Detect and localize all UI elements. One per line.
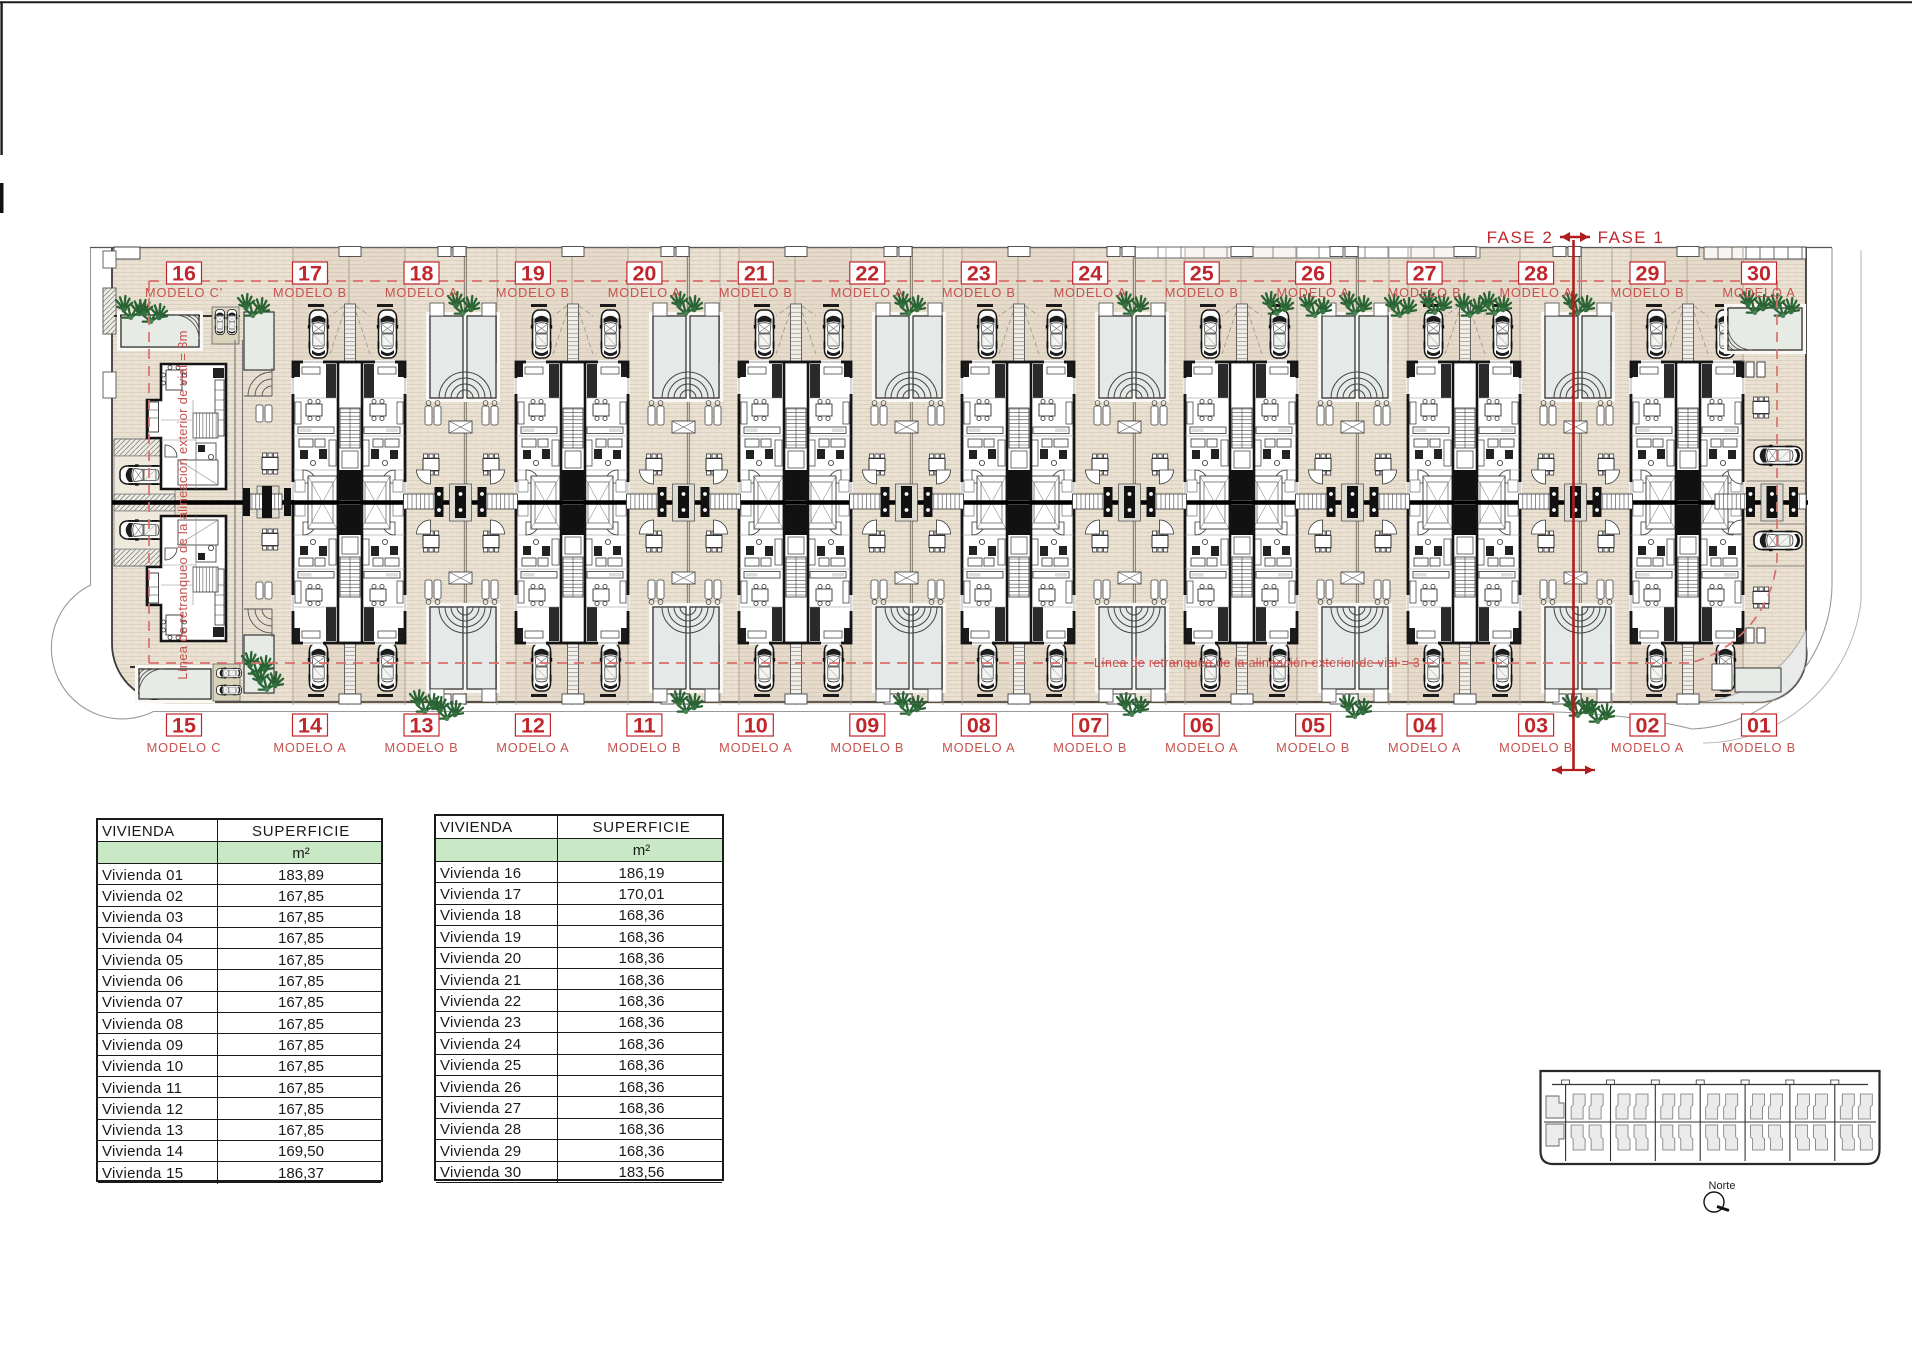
svg-text:MODELO B: MODELO B [1165, 285, 1239, 300]
svg-text:21: 21 [744, 262, 768, 286]
svg-text:04: 04 [1413, 714, 1437, 738]
svg-text:01: 01 [1747, 714, 1771, 738]
svg-text:16: 16 [172, 262, 196, 286]
svg-text:15: 15 [172, 714, 196, 738]
svg-text:20: 20 [632, 262, 656, 286]
svg-text:26: 26 [1301, 262, 1325, 286]
svg-text:23: 23 [967, 262, 991, 286]
svg-text:MODELO B: MODELO B [830, 740, 904, 755]
svg-text:MODELO A: MODELO A [385, 285, 458, 300]
svg-text:MODELO A: MODELO A [273, 740, 346, 755]
svg-text:FASE 1: FASE 1 [1598, 228, 1665, 247]
svg-text:02: 02 [1636, 714, 1660, 738]
svg-text:07: 07 [1078, 714, 1102, 738]
svg-text:10: 10 [744, 714, 768, 738]
svg-text:MODELO B: MODELO B [1722, 740, 1796, 755]
svg-text:MODELO B: MODELO B [273, 285, 347, 300]
svg-text:MODELO B: MODELO B [496, 285, 570, 300]
svg-text:MODELO A: MODELO A [496, 740, 569, 755]
svg-text:14: 14 [298, 714, 322, 738]
svg-text:Línea de retranqueo de la alin: Línea de retranqueo de la alineación ext… [1094, 656, 1420, 670]
svg-text:MODELO B: MODELO B [607, 740, 681, 755]
svg-text:12: 12 [521, 714, 545, 738]
svg-text:MODELO B: MODELO B [385, 740, 459, 755]
svg-text:MODELO B: MODELO B [1611, 285, 1685, 300]
svg-text:19: 19 [521, 262, 545, 286]
svg-text:27: 27 [1413, 262, 1437, 286]
svg-text:FASE 2: FASE 2 [1487, 228, 1554, 247]
svg-text:MODELO A: MODELO A [1276, 285, 1349, 300]
svg-text:MODELO B: MODELO B [719, 285, 793, 300]
svg-text:29: 29 [1636, 262, 1660, 286]
svg-text:MODELO A: MODELO A [1054, 285, 1127, 300]
svg-text:Línea de retranqueo de la alin: Línea de retranqueo de la alineación ext… [175, 330, 190, 679]
svg-text:MODELO A: MODELO A [1499, 285, 1572, 300]
svg-text:24: 24 [1078, 262, 1102, 286]
svg-text:06: 06 [1190, 714, 1214, 738]
svg-text:08: 08 [967, 714, 991, 738]
svg-text:11: 11 [633, 714, 656, 738]
svg-text:MODELO A: MODELO A [719, 740, 792, 755]
svg-text:MODELO A: MODELO A [1388, 740, 1461, 755]
svg-text:09: 09 [855, 714, 879, 738]
svg-text:MODELO A: MODELO A [1722, 285, 1795, 300]
svg-text:MODELO A: MODELO A [831, 285, 904, 300]
svg-text:MODELO B: MODELO B [1276, 740, 1350, 755]
svg-text:13: 13 [410, 714, 434, 738]
svg-text:MODELO A: MODELO A [1165, 740, 1238, 755]
svg-text:MODELO B: MODELO B [1053, 740, 1127, 755]
svg-text:MODELO B: MODELO B [1388, 285, 1462, 300]
svg-text:MODELO A: MODELO A [1611, 740, 1684, 755]
svg-text:MODELO A: MODELO A [608, 285, 681, 300]
svg-text:MODELO A: MODELO A [942, 740, 1015, 755]
svg-text:MODELO B: MODELO B [1499, 740, 1573, 755]
svg-text:25: 25 [1190, 262, 1214, 286]
svg-text:28: 28 [1524, 262, 1548, 286]
svg-text:03: 03 [1524, 714, 1548, 738]
svg-text:MODELO C: MODELO C [147, 740, 222, 755]
svg-text:17: 17 [298, 262, 322, 286]
svg-text:18: 18 [410, 262, 434, 286]
svg-text:05: 05 [1301, 714, 1325, 738]
svg-text:MODELO C': MODELO C' [145, 285, 223, 300]
svg-text:30: 30 [1747, 262, 1771, 286]
svg-text:22: 22 [855, 262, 879, 286]
svg-text:MODELO B: MODELO B [942, 285, 1016, 300]
svg-text:Norte: Norte [1709, 1180, 1736, 1192]
